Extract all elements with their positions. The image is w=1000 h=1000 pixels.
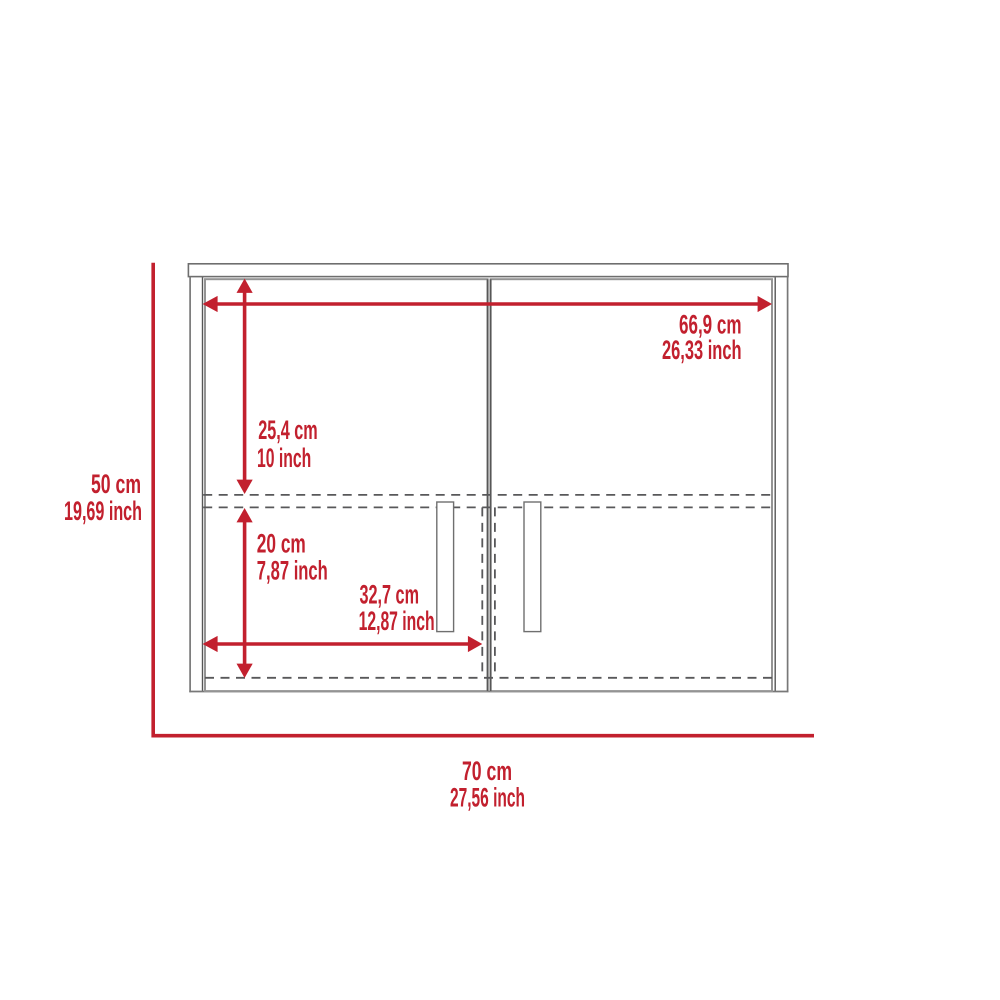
svg-text:20 cm: 20 cm (257, 528, 306, 558)
svg-text:10 inch: 10 inch (257, 443, 311, 473)
svg-text:19,69 inch: 19,69 inch (64, 496, 142, 526)
svg-text:50 cm: 50 cm (91, 469, 141, 499)
svg-text:12,87 inch: 12,87 inch (359, 606, 435, 636)
svg-text:27,56 inch: 27,56 inch (450, 782, 525, 812)
svg-text:7,87 inch: 7,87 inch (257, 556, 328, 586)
svg-text:25,4 cm: 25,4 cm (258, 415, 318, 445)
svg-text:26,33 inch: 26,33 inch (662, 335, 742, 365)
svg-text:32,7 cm: 32,7 cm (360, 580, 420, 610)
